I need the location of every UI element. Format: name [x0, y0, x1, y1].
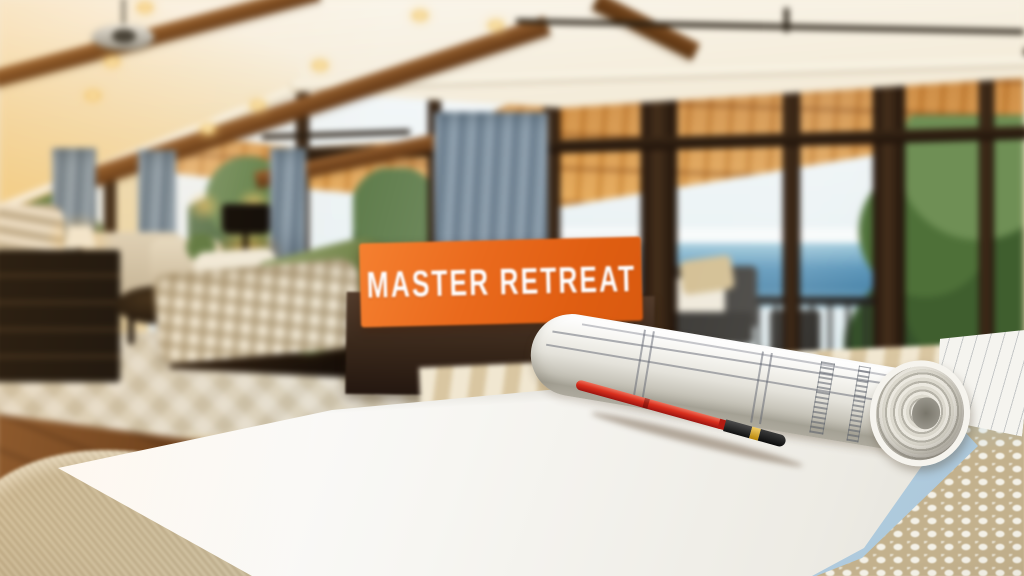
bedroom-staging-photo: MASTER RETREAT — [0, 0, 1024, 576]
